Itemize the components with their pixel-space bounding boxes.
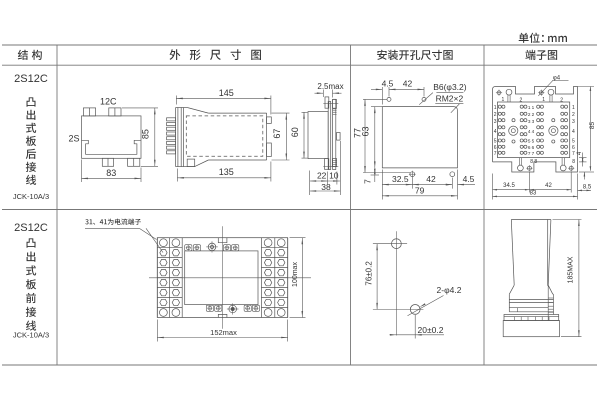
svg-text:1: 1 (528, 105, 531, 110)
svg-text:185MAX: 185MAX (567, 256, 574, 283)
svg-text:5: 5 (528, 139, 531, 144)
svg-text:2: 2 (494, 112, 497, 118)
svg-text:60: 60 (290, 127, 300, 137)
svg-text:63: 63 (361, 126, 371, 136)
svg-text:7: 7 (532, 151, 535, 156)
svg-text:4: 4 (572, 129, 575, 135)
svg-text:5: 5 (494, 139, 497, 145)
svg-text:2-φ4.2: 2-φ4.2 (437, 285, 462, 295)
svg-text:100max: 100max (292, 262, 299, 287)
svg-text:83: 83 (530, 191, 537, 197)
svg-text:8.5: 8.5 (583, 184, 592, 190)
svg-text:2: 2 (560, 97, 563, 103)
svg-text:4.5: 4.5 (382, 78, 394, 88)
svg-text:7: 7 (494, 151, 497, 157)
svg-text:JCK-10A/3: JCK-10A/3 (13, 192, 49, 201)
svg-text:85: 85 (141, 129, 151, 139)
svg-text:JCK-10A/3: JCK-10A/3 (13, 331, 49, 340)
svg-text:20±0.2: 20±0.2 (418, 325, 444, 335)
svg-text:2: 2 (572, 112, 575, 118)
svg-text:2S12C: 2S12C (14, 222, 48, 234)
svg-text:B6(φ3.2): B6(φ3.2) (433, 82, 467, 92)
svg-text:5: 5 (572, 139, 575, 145)
svg-text:8: 8 (572, 159, 575, 165)
svg-text:22: 22 (317, 171, 327, 181)
svg-text:135: 135 (219, 167, 234, 177)
svg-text:1: 1 (542, 97, 545, 103)
svg-text:4: 4 (494, 129, 497, 135)
svg-text:79: 79 (415, 185, 425, 195)
svg-text:7: 7 (528, 151, 531, 156)
svg-text:12C: 12C (100, 96, 117, 106)
svg-text:67: 67 (272, 129, 282, 139)
svg-text:152max: 152max (210, 328, 237, 337)
svg-text:7: 7 (572, 151, 575, 157)
svg-text:RM2×2: RM2×2 (436, 94, 464, 104)
svg-text:42: 42 (545, 183, 552, 189)
svg-text:76±0.2: 76±0.2 (364, 261, 373, 286)
svg-text:2: 2 (520, 97, 523, 103)
svg-text:6: 6 (532, 145, 535, 150)
svg-text:1: 1 (494, 105, 497, 111)
svg-text:6: 6 (528, 145, 531, 150)
svg-text:3: 3 (528, 119, 531, 124)
svg-text:4: 4 (532, 129, 535, 134)
svg-text:5: 5 (532, 139, 535, 144)
svg-text:2S12C: 2S12C (14, 73, 48, 85)
svg-text:145: 145 (219, 88, 234, 98)
svg-text:42: 42 (403, 78, 413, 88)
svg-text:4.5: 4.5 (463, 174, 475, 184)
svg-text:3: 3 (494, 119, 497, 125)
svg-text:34.5: 34.5 (503, 183, 515, 189)
svg-text:2: 2 (528, 112, 531, 117)
svg-text:7: 7 (363, 179, 373, 184)
svg-text:42: 42 (426, 174, 436, 184)
svg-text:1: 1 (532, 105, 535, 110)
svg-text:4: 4 (528, 129, 531, 134)
svg-text:83: 83 (106, 168, 116, 178)
svg-text:1: 1 (572, 105, 575, 111)
svg-text:2: 2 (532, 112, 535, 117)
svg-text:85: 85 (589, 122, 596, 130)
svg-text:38: 38 (321, 182, 331, 192)
svg-text:10: 10 (329, 171, 339, 181)
svg-text:3: 3 (572, 119, 575, 125)
svg-text:1: 1 (502, 97, 505, 103)
svg-text:3: 3 (532, 119, 535, 124)
svg-text:8 8: 8 8 (530, 159, 537, 165)
svg-text:2.5max: 2.5max (317, 82, 343, 91)
svg-text:32.5: 32.5 (392, 174, 409, 184)
svg-text:2S: 2S (68, 134, 79, 144)
